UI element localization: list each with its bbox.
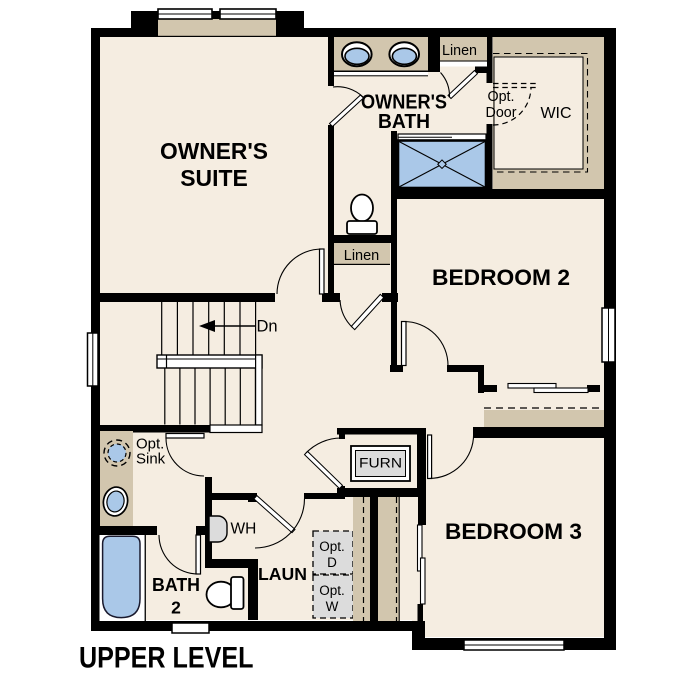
- svg-text:WIC: WIC: [540, 105, 571, 122]
- svg-text:BEDROOM 3: BEDROOM 3: [445, 519, 582, 544]
- svg-text:Opt.: Opt.: [319, 539, 345, 554]
- svg-text:SUITE: SUITE: [180, 165, 248, 191]
- svg-text:Sink: Sink: [136, 451, 166, 468]
- svg-text:LAUN: LAUN: [258, 564, 307, 584]
- svg-text:Dn: Dn: [257, 318, 278, 336]
- svg-text:Opt.: Opt.: [487, 89, 514, 105]
- svg-text:2: 2: [171, 598, 181, 618]
- svg-text:Linen: Linen: [344, 248, 380, 264]
- svg-text:OWNER'S: OWNER'S: [160, 138, 268, 164]
- svg-text:BATH: BATH: [378, 111, 430, 133]
- svg-text:Opt.: Opt.: [319, 583, 345, 598]
- svg-text:Linen: Linen: [442, 43, 477, 59]
- svg-text:UPPER LEVEL: UPPER LEVEL: [79, 642, 254, 675]
- svg-text:Door: Door: [486, 105, 517, 121]
- svg-text:D: D: [327, 555, 337, 570]
- svg-text:FURN: FURN: [359, 455, 402, 471]
- svg-text:WH: WH: [231, 521, 257, 538]
- svg-text:BEDROOM 2: BEDROOM 2: [432, 265, 570, 290]
- svg-text:W: W: [326, 599, 339, 614]
- svg-text:BATH: BATH: [152, 575, 200, 595]
